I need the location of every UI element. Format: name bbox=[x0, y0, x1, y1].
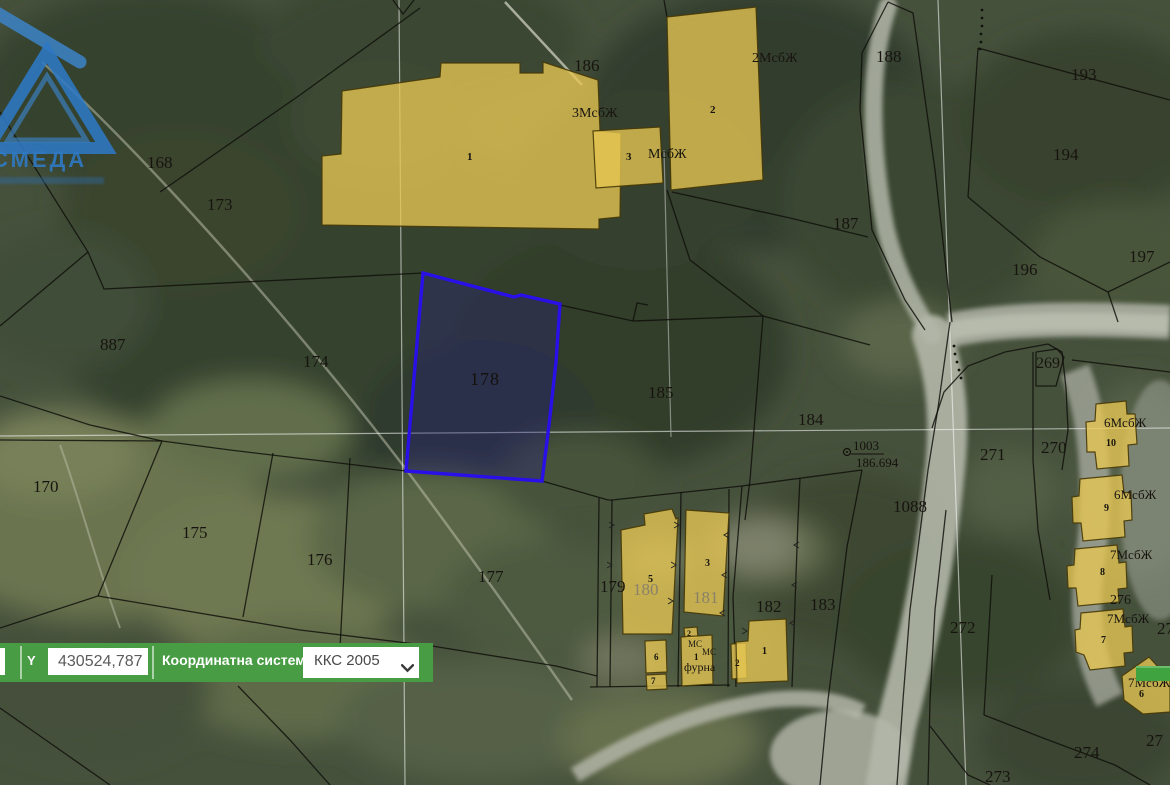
parcel-label: 176 bbox=[307, 550, 333, 569]
parcel-label: 27 bbox=[1157, 619, 1170, 638]
parcel-label: 181 bbox=[693, 588, 719, 607]
y-coordinate-label: Y bbox=[27, 653, 36, 668]
parcel-label: 272 bbox=[950, 618, 976, 637]
building-label: 6МсбЖ bbox=[1104, 415, 1147, 430]
parcel-label: 182 bbox=[756, 597, 782, 616]
parcel-label: 179 bbox=[600, 577, 626, 596]
parcel-label: 183 bbox=[810, 595, 836, 614]
building-label: 7 bbox=[1101, 635, 1106, 646]
y-coordinate-value: 430524,787 bbox=[58, 653, 143, 671]
building-label: 2МсбЖ bbox=[752, 51, 798, 66]
bar-separator bbox=[20, 646, 22, 679]
parcel-label: 187 bbox=[833, 214, 859, 233]
toolbar-fragment[interactable] bbox=[1136, 666, 1170, 681]
geodetic-point-id: 1003 bbox=[853, 438, 879, 453]
parcel-label: 184 bbox=[798, 410, 824, 429]
parcel-label: 188 bbox=[876, 47, 902, 66]
parcel-label: 175 bbox=[182, 523, 208, 542]
parcel-label: 269 bbox=[1036, 355, 1060, 372]
parcel-label: 271 bbox=[980, 445, 1006, 464]
building-label: МС bbox=[702, 647, 716, 657]
parcel-label: 197 bbox=[1129, 247, 1155, 266]
coordinate-system-value: ККС 2005 bbox=[314, 652, 380, 669]
coordinate-system-label: Координатна система bbox=[162, 652, 313, 668]
parcel-label: 1088 bbox=[893, 497, 927, 516]
parcel-label: 270 bbox=[1041, 438, 1067, 457]
chevron-down-icon bbox=[401, 664, 414, 673]
building-label: 5 bbox=[648, 574, 653, 585]
parcel-label: 177 bbox=[478, 567, 504, 586]
parcel-label: 170 bbox=[33, 477, 59, 496]
parcel-label: 174 bbox=[303, 352, 329, 371]
parcel-label: 276 bbox=[1110, 593, 1131, 608]
building-label: 7 bbox=[651, 676, 656, 686]
coordinate-bar: Y 430524,787 Координатна система ККС 200… bbox=[0, 643, 433, 682]
parcel-label: 274 bbox=[1074, 743, 1100, 762]
bar-separator bbox=[152, 646, 154, 679]
building-label: 2 bbox=[687, 629, 691, 638]
building-label: 7МсбЖ bbox=[1110, 547, 1153, 562]
parcel-label: 173 bbox=[207, 195, 233, 214]
coordinate-system-dropdown[interactable]: ККС 2005 bbox=[303, 647, 419, 678]
parcel-label: 168 bbox=[147, 153, 173, 172]
building-label: 2 bbox=[735, 658, 740, 668]
building-label: 6 bbox=[654, 652, 659, 662]
parcel-label: 186 bbox=[574, 56, 600, 75]
building-label: 3МсбЖ bbox=[572, 106, 618, 121]
map-viewport: 178 1003 186.694 16817388717417017517617… bbox=[0, 0, 1170, 785]
building-label: 2 bbox=[710, 104, 716, 116]
building-label: 8 bbox=[1100, 567, 1105, 578]
parcel-label: 196 bbox=[1012, 260, 1038, 279]
parcel-label: 887 bbox=[100, 335, 126, 354]
building-label: 3 bbox=[626, 151, 632, 163]
building-label: фурна bbox=[684, 660, 716, 674]
building-label: 1 bbox=[467, 151, 473, 163]
parcel-label: 185 bbox=[648, 383, 674, 402]
building-label: МсбЖ bbox=[648, 147, 687, 162]
selected-parcel-label: 178 bbox=[470, 369, 500, 389]
building-label: 7МсбЖ bbox=[1107, 611, 1150, 626]
building-label: МС bbox=[688, 639, 702, 649]
y-coordinate-input[interactable]: 430524,787 bbox=[48, 648, 148, 675]
building-label: 9 bbox=[1104, 503, 1109, 514]
parcel-label: 27 bbox=[1146, 731, 1164, 750]
building-label: 1 bbox=[762, 646, 767, 657]
building-label: 10 bbox=[1106, 438, 1116, 449]
building-label: 3 bbox=[705, 558, 710, 569]
building-label: 6МсбЖ bbox=[1114, 487, 1157, 502]
parcel-label: 193 bbox=[1071, 65, 1097, 84]
building-label: 6 bbox=[1139, 689, 1144, 700]
parcel-label: 194 bbox=[1053, 145, 1079, 164]
x-coordinate-input-fragment[interactable] bbox=[0, 648, 5, 675]
parcel-label: 273 bbox=[985, 767, 1011, 785]
geodetic-point-elevation: 186.694 bbox=[856, 455, 899, 470]
selected-parcel-outline[interactable]: 178 bbox=[406, 273, 560, 481]
parcel-label: 180 bbox=[633, 580, 659, 599]
